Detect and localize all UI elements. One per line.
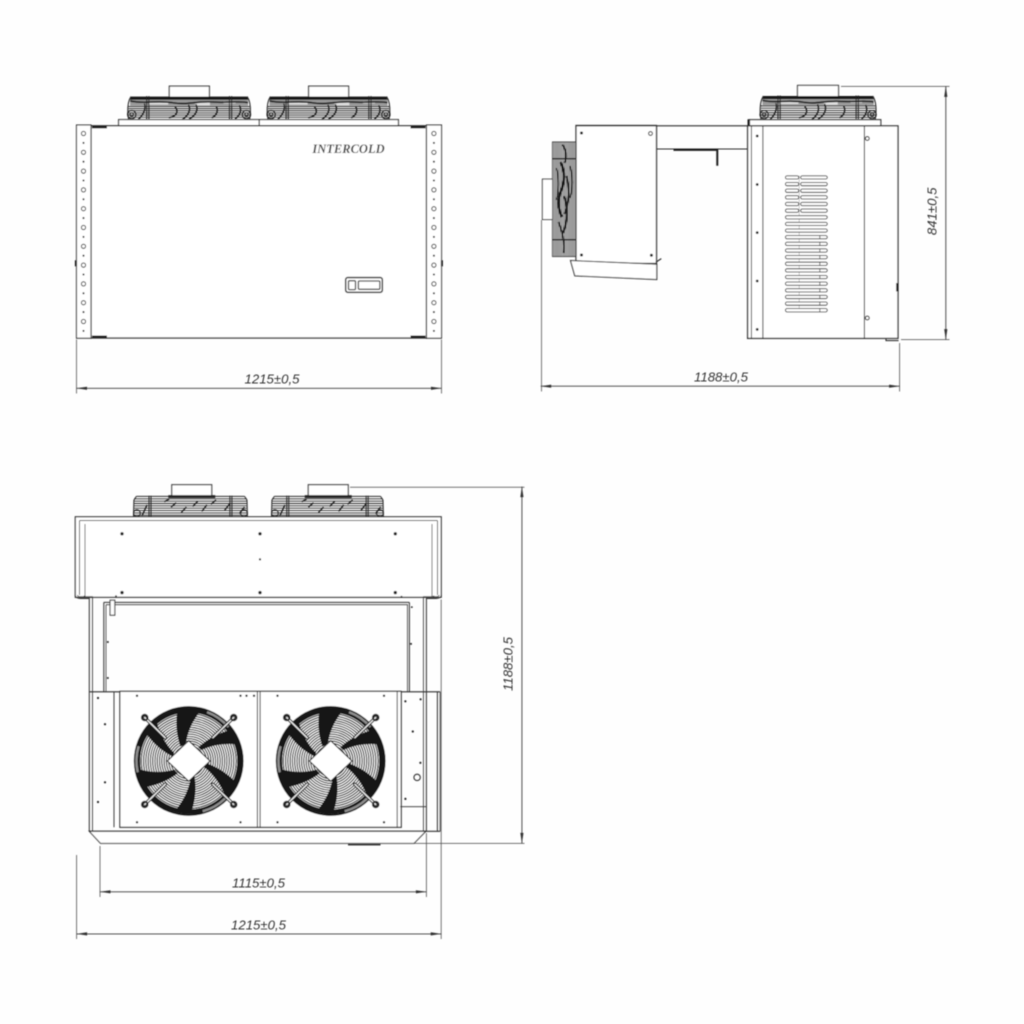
svg-text:1215±0,5: 1215±0,5: [231, 917, 287, 932]
svg-text:1115±0,5: 1115±0,5: [232, 875, 286, 890]
svg-text:1188±0,5: 1188±0,5: [694, 369, 749, 384]
svg-text:841±0,5: 841±0,5: [925, 187, 940, 235]
svg-text:1188±0,5: 1188±0,5: [501, 636, 516, 691]
svg-text:1215±0,5: 1215±0,5: [245, 371, 301, 386]
svg-text:INTERCOLD: INTERCOLD: [311, 142, 384, 156]
